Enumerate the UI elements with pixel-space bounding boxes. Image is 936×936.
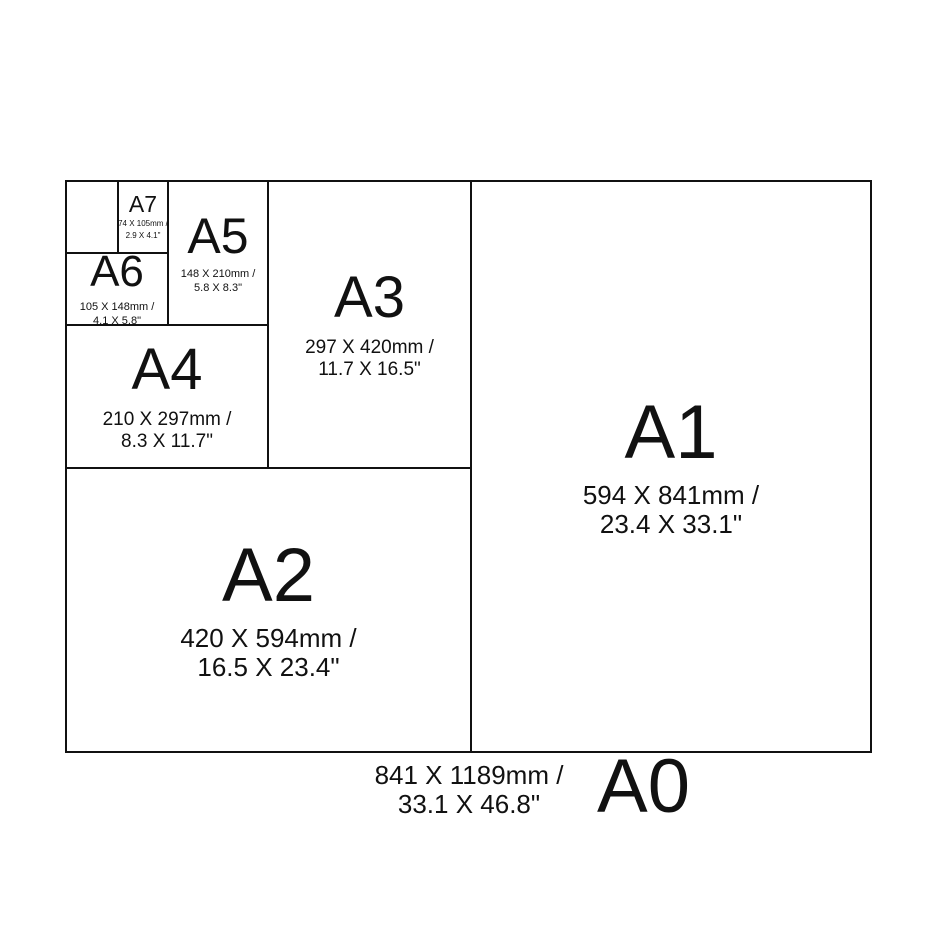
a7-label: A7 <box>129 193 157 216</box>
a3-dimensions-mm: 297 X 420mm / <box>305 337 434 359</box>
a3-cell: A3 297 X 420mm / 11.7 X 16.5" <box>269 182 470 467</box>
a7-dimensions-inches: 2.9 X 4.1" <box>118 230 168 241</box>
a5-dimensions-inches: 5.8 X 8.3" <box>181 281 256 295</box>
a1-dimensions-inches: 23.4 X 33.1" <box>583 510 759 539</box>
a1-label: A1 <box>625 395 718 471</box>
a3-dimensions: 297 X 420mm / 11.7 X 16.5" <box>305 337 434 381</box>
a3-dimensions-inches: 11.7 X 16.5" <box>305 359 434 381</box>
a5-dimensions: 148 X 210mm / 5.8 X 8.3" <box>181 267 256 296</box>
a5-label: A5 <box>187 211 248 261</box>
a6-dimensions-mm: 105 X 148mm / <box>80 300 155 314</box>
a6-dimensions: 105 X 148mm / 4.1 X 5.8" <box>80 300 155 329</box>
a6-label: A6 <box>90 250 144 294</box>
a2-cell: A2 420 X 594mm / 16.5 X 23.4" <box>67 469 470 751</box>
paper-sizes-diagram: A7 74 X 105mm / 2.9 X 4.1" A6 105 X 148m… <box>0 0 936 936</box>
a5-cell: A5 148 X 210mm / 5.8 X 8.3" <box>169 182 267 324</box>
a2-dimensions-inches: 16.5 X 23.4" <box>180 653 356 682</box>
a1-cell: A1 594 X 841mm / 23.4 X 33.1" <box>472 182 870 751</box>
a0-sheet-outline: A7 74 X 105mm / 2.9 X 4.1" A6 105 X 148m… <box>65 180 872 753</box>
a7-dimensions-mm: 74 X 105mm / <box>118 218 168 229</box>
a4-dimensions-inches: 8.3 X 11.7" <box>103 431 232 453</box>
a2-label: A2 <box>222 538 315 614</box>
a4-label: A4 <box>132 341 203 399</box>
a3-label: A3 <box>334 269 405 327</box>
a4-dimensions: 210 X 297mm / 8.3 X 11.7" <box>103 409 232 453</box>
a1-dimensions-mm: 594 X 841mm / <box>583 481 759 510</box>
a7-dimensions: 74 X 105mm / 2.9 X 4.1" <box>118 218 168 240</box>
a4-dimensions-mm: 210 X 297mm / <box>103 409 232 431</box>
blank-cell <box>67 182 117 252</box>
a1-dimensions: 594 X 841mm / 23.4 X 33.1" <box>583 481 759 538</box>
a7-cell: A7 74 X 105mm / 2.9 X 4.1" <box>119 182 167 252</box>
a0-label: A0 <box>597 749 690 825</box>
a5-dimensions-mm: 148 X 210mm / <box>181 267 256 281</box>
a2-dimensions-mm: 420 X 594mm / <box>180 624 356 653</box>
a6-cell: A6 105 X 148mm / 4.1 X 5.8" <box>67 254 167 324</box>
a2-dimensions: 420 X 594mm / 16.5 X 23.4" <box>180 624 356 681</box>
a4-cell: A4 210 X 297mm / 8.3 X 11.7" <box>67 326 267 467</box>
